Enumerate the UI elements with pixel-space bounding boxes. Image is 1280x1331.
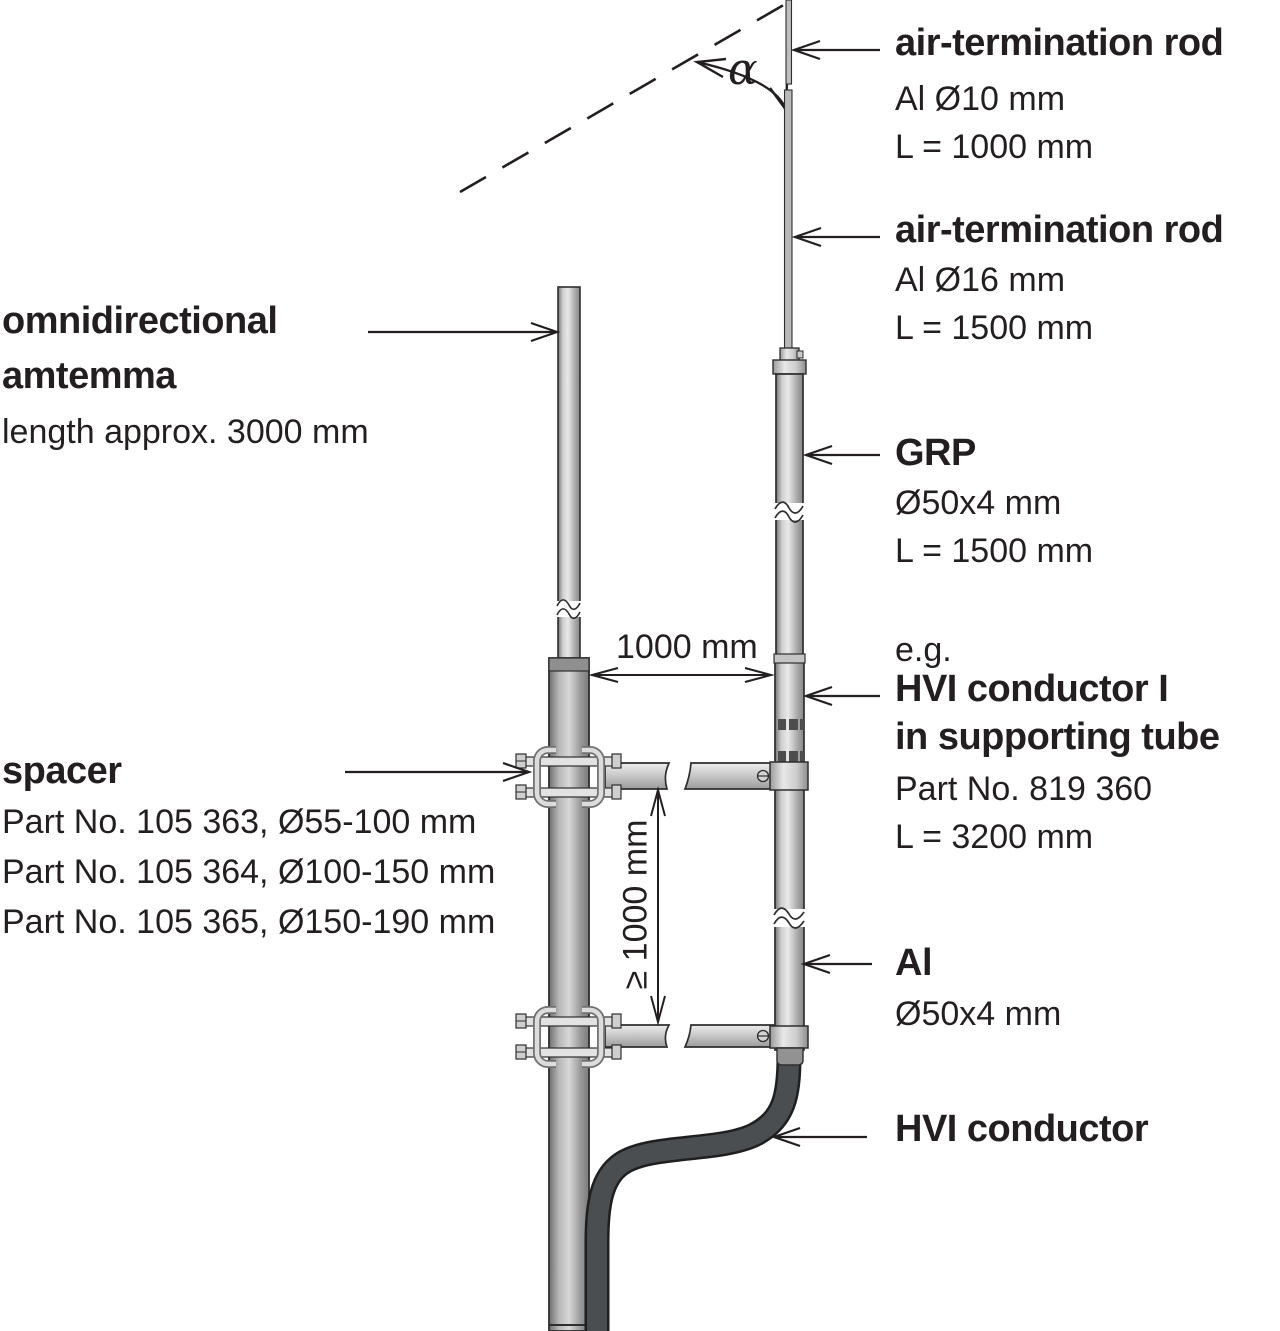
label-hvi-supporting-prefix: e.g. (895, 631, 952, 669)
label-spacer-spec3: Part No. 105 365, Ø150-190 mm (2, 903, 495, 941)
leader-arrow-grp (806, 446, 880, 464)
diagram-mast-lightning-protection: air-termination rod Al Ø10 mm L = 1000 m… (0, 0, 1280, 1331)
label-hvi-supporting-title1: HVI conductor I (895, 668, 1168, 711)
label-hvi-supporting-spec2: L = 3200 mm (895, 818, 1093, 856)
air-termination-rod-thick (773, 90, 806, 374)
label-al-title: Al (895, 942, 932, 985)
dim-arrow-horizontal-1000mm (592, 668, 771, 682)
label-air-rod-thin-title: air-termination rod (895, 22, 1223, 65)
label-air-rod-thick-spec1: Al Ø16 mm (895, 261, 1065, 299)
label-spacer-title: spacer (2, 750, 122, 793)
label-air-rod-thick-title: air-termination rod (895, 209, 1223, 252)
spacer-arm-lower (605, 1025, 776, 1047)
label-al-spec1: Ø50x4 mm (895, 995, 1061, 1033)
label-spacer-spec1: Part No. 105 363, Ø55-100 mm (2, 803, 476, 841)
leader-arrow-hvi-supporting (806, 687, 880, 705)
leader-arrow-spacer (345, 763, 529, 781)
leader-arrow-al (804, 955, 872, 973)
label-grp-spec1: Ø50x4 mm (895, 484, 1061, 522)
label-grp-spec2: L = 1500 mm (895, 532, 1093, 570)
label-hvi-conductor-title: HVI conductor (895, 1108, 1148, 1151)
leader-arrow-air-rod-thin (794, 41, 880, 59)
supporting-tube (758, 654, 811, 1050)
leader-arrow-antenna (368, 323, 557, 341)
label-grp-title: GRP (895, 432, 976, 475)
leader-arrow-hvi-conductor (774, 1128, 867, 1146)
label-antenna-title2: amtemma (2, 355, 176, 398)
label-antenna-title1: omnidirectional (2, 300, 277, 343)
label-antenna-spec1: length approx. 3000 mm (2, 413, 369, 451)
label-hvi-supporting-title2: in supporting tube (895, 716, 1220, 759)
protection-angle-dashed-line (460, 3, 787, 192)
label-spacer-spec2: Part No. 105 364, Ø100-150 mm (2, 853, 495, 891)
antenna-tube (552, 287, 586, 662)
grp-tube (770, 374, 809, 658)
label-air-rod-thin-spec2: L = 1000 mm (895, 128, 1093, 166)
label-air-rod-thick-spec2: L = 1500 mm (895, 309, 1093, 347)
label-air-rod-thin-spec1: Al Ø10 mm (895, 80, 1065, 118)
leader-arrow-air-rod-thick (795, 228, 880, 246)
air-termination-rod-thin (786, 0, 792, 84)
spacer-arm-upper (605, 763, 776, 789)
angle-symbol: α (728, 44, 758, 95)
label-hvi-supporting-spec1: Part No. 819 360 (895, 770, 1152, 808)
dim-text-horizontal: 1000 mm (616, 628, 758, 667)
hvi-cable (597, 1056, 789, 1331)
dim-text-vertical: ≥ 1000 mm (617, 810, 656, 1000)
